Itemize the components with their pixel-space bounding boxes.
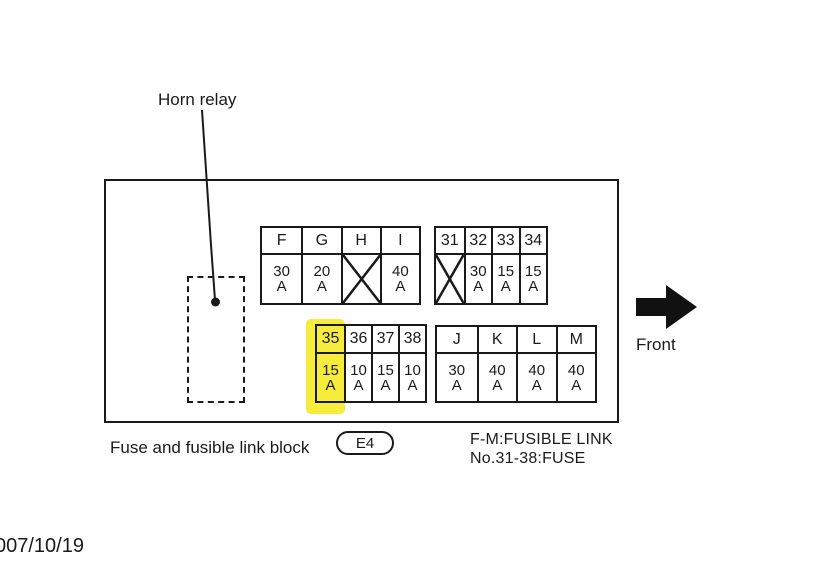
legend-line-fuse: No.31-38:FUSE (470, 449, 613, 468)
slot-label-38: 38 (398, 326, 425, 354)
slot-label-34: 34 (519, 228, 547, 255)
slot-label-32: 32 (464, 228, 492, 255)
fuse-table-35-38: 35 36 37 38 15 A 10 A 15 A 10 A (315, 324, 427, 403)
rating-32: 30 A (464, 255, 492, 303)
slot-label-M: M (556, 327, 596, 354)
slot-label-35-highlighted: 35 (317, 326, 344, 354)
rating-34: 15 A (519, 255, 547, 303)
rating-J: 30 A (437, 354, 477, 401)
slot-label-37: 37 (371, 326, 398, 354)
rating-36: 10 A (344, 354, 371, 401)
rating-H-crossed (341, 255, 380, 303)
connector-badge-e4: E4 (336, 431, 394, 455)
slot-label-J: J (437, 327, 477, 354)
legend-line-fusible-link: F-M:FUSIBLE LINK (470, 430, 613, 449)
rating-35-highlighted: 15 A (317, 354, 344, 401)
slot-label-G: G (301, 228, 340, 255)
fuse-table-31-34: 31 32 33 34 30 A 15 A 15 A (434, 226, 548, 305)
slot-label-36: 36 (344, 326, 371, 354)
rating-K: 40 A (477, 354, 517, 401)
rating-G: 20 A (301, 255, 340, 303)
rating-L: 40 A (516, 354, 556, 401)
rating-I: 40 A (380, 255, 419, 303)
date-stamp: 007/10/19 (0, 535, 84, 558)
rating-38: 10 A (398, 354, 425, 401)
slot-label-33: 33 (491, 228, 519, 255)
connector-code: E4 (356, 435, 374, 452)
slot-label-K: K (477, 327, 517, 354)
fusible-link-table-top: F G H I 30 A 20 A 40 A (260, 226, 421, 305)
caption-label: Fuse and fusible link block (110, 438, 309, 458)
fuse-block-diagram-page: { "diagram": { "horn_relay_label": "Horn… (0, 0, 836, 580)
rating-37: 15 A (371, 354, 398, 401)
front-arrow-icon (636, 283, 698, 333)
slot-label-L: L (516, 327, 556, 354)
rating-F: 30 A (262, 255, 301, 303)
slot-label-H: H (341, 228, 380, 255)
slot-label-31: 31 (436, 228, 464, 255)
rating-31-crossed (436, 255, 464, 303)
slot-label-I: I (380, 228, 419, 255)
rating-33: 15 A (491, 255, 519, 303)
slot-label-F: F (262, 228, 301, 255)
fusible-link-table-bottom: J K L M 30 A 40 A 40 A 40 A (435, 325, 597, 403)
x-mark-icon (343, 255, 380, 303)
rating-M: 40 A (556, 354, 596, 401)
legend: F-M:FUSIBLE LINK No.31-38:FUSE (470, 430, 613, 468)
horn-relay-dashed-outline (187, 276, 245, 403)
horn-relay-label: Horn relay (158, 90, 236, 110)
front-label: Front (636, 335, 676, 355)
x-mark-icon (436, 255, 464, 303)
